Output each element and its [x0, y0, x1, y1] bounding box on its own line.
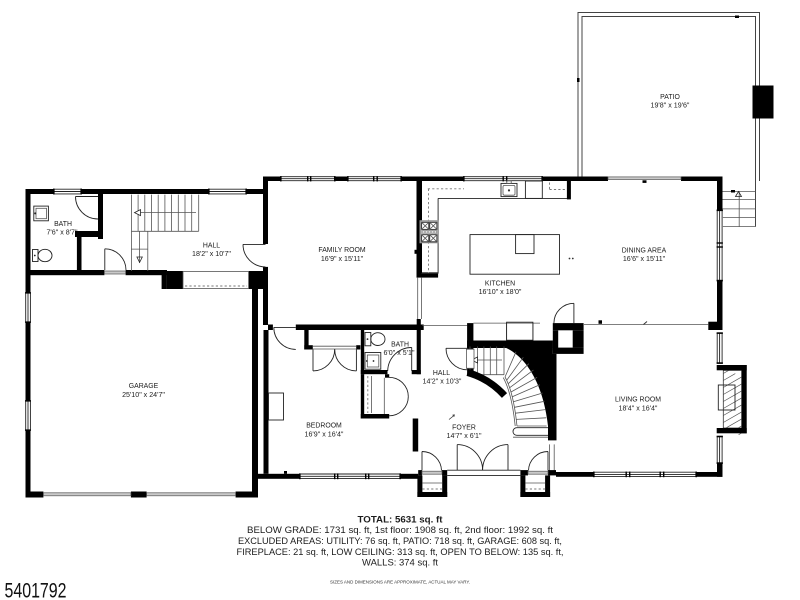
svg-text:19'8" x 19'6": 19'8" x 19'6" — [651, 102, 690, 110]
svg-text:LIVING ROOM: LIVING ROOM — [615, 397, 661, 404]
svg-text:BATH: BATH — [391, 342, 409, 349]
svg-text:SIZES AND DIMENSIONS ARE APPRO: SIZES AND DIMENSIONS ARE APPROXIMATE, AC… — [330, 580, 470, 585]
svg-text:WALLS: 374 sq. ft: WALLS: 374 sq. ft — [362, 558, 438, 568]
svg-text:HALL: HALL — [433, 370, 450, 377]
svg-text:18'4" x 16'4": 18'4" x 16'4" — [619, 405, 658, 413]
svg-text:16'10" x 18'0": 16'10" x 18'0" — [479, 288, 522, 296]
svg-text:14'7" x 6'1": 14'7" x 6'1" — [447, 432, 482, 440]
svg-text:DINING AREA: DINING AREA — [622, 248, 667, 255]
svg-text:BEDROOM: BEDROOM — [306, 423, 342, 430]
svg-text:7'6" x 8'7": 7'6" x 8'7" — [46, 229, 77, 237]
svg-text:14'2" x 10'3": 14'2" x 10'3" — [423, 378, 462, 386]
svg-text:6'0" x 5'1": 6'0" x 5'1" — [383, 349, 414, 357]
svg-text:16'6" x 15'11": 16'6" x 15'11" — [623, 255, 666, 263]
svg-text:16'9" x 16'4": 16'9" x 16'4" — [305, 431, 344, 439]
svg-text:25'10" x 24'7": 25'10" x 24'7" — [122, 391, 165, 399]
svg-text:FOYER: FOYER — [452, 425, 476, 432]
svg-text:18'2" x 10'7": 18'2" x 10'7" — [192, 250, 231, 258]
svg-text:16'9" x 15'11": 16'9" x 15'11" — [321, 255, 364, 263]
svg-text:HALL: HALL — [203, 243, 220, 250]
svg-text:BELOW GRADE: 1731 sq. ft, 1st: BELOW GRADE: 1731 sq. ft, 1st floor: 190… — [247, 525, 553, 535]
svg-text:PATIO: PATIO — [660, 94, 680, 101]
svg-text:5401792: 5401792 — [5, 579, 67, 600]
svg-text:FAMILY ROOM: FAMILY ROOM — [318, 247, 365, 254]
svg-text:BATH: BATH — [54, 221, 72, 228]
svg-text:FIREPLACE: 21 sq. ft, LOW CEIL: FIREPLACE: 21 sq. ft, LOW CEILING: 313 s… — [237, 547, 564, 557]
svg-text:EXCLUDED AREAS: UTILITY: 76 sq: EXCLUDED AREAS: UTILITY: 76 sq. ft, PATI… — [238, 536, 562, 546]
svg-text:KITCHEN: KITCHEN — [485, 281, 515, 288]
svg-text:TOTAL: 5631 sq. ft: TOTAL: 5631 sq. ft — [358, 515, 443, 525]
svg-text:GARAGE: GARAGE — [129, 383, 159, 390]
